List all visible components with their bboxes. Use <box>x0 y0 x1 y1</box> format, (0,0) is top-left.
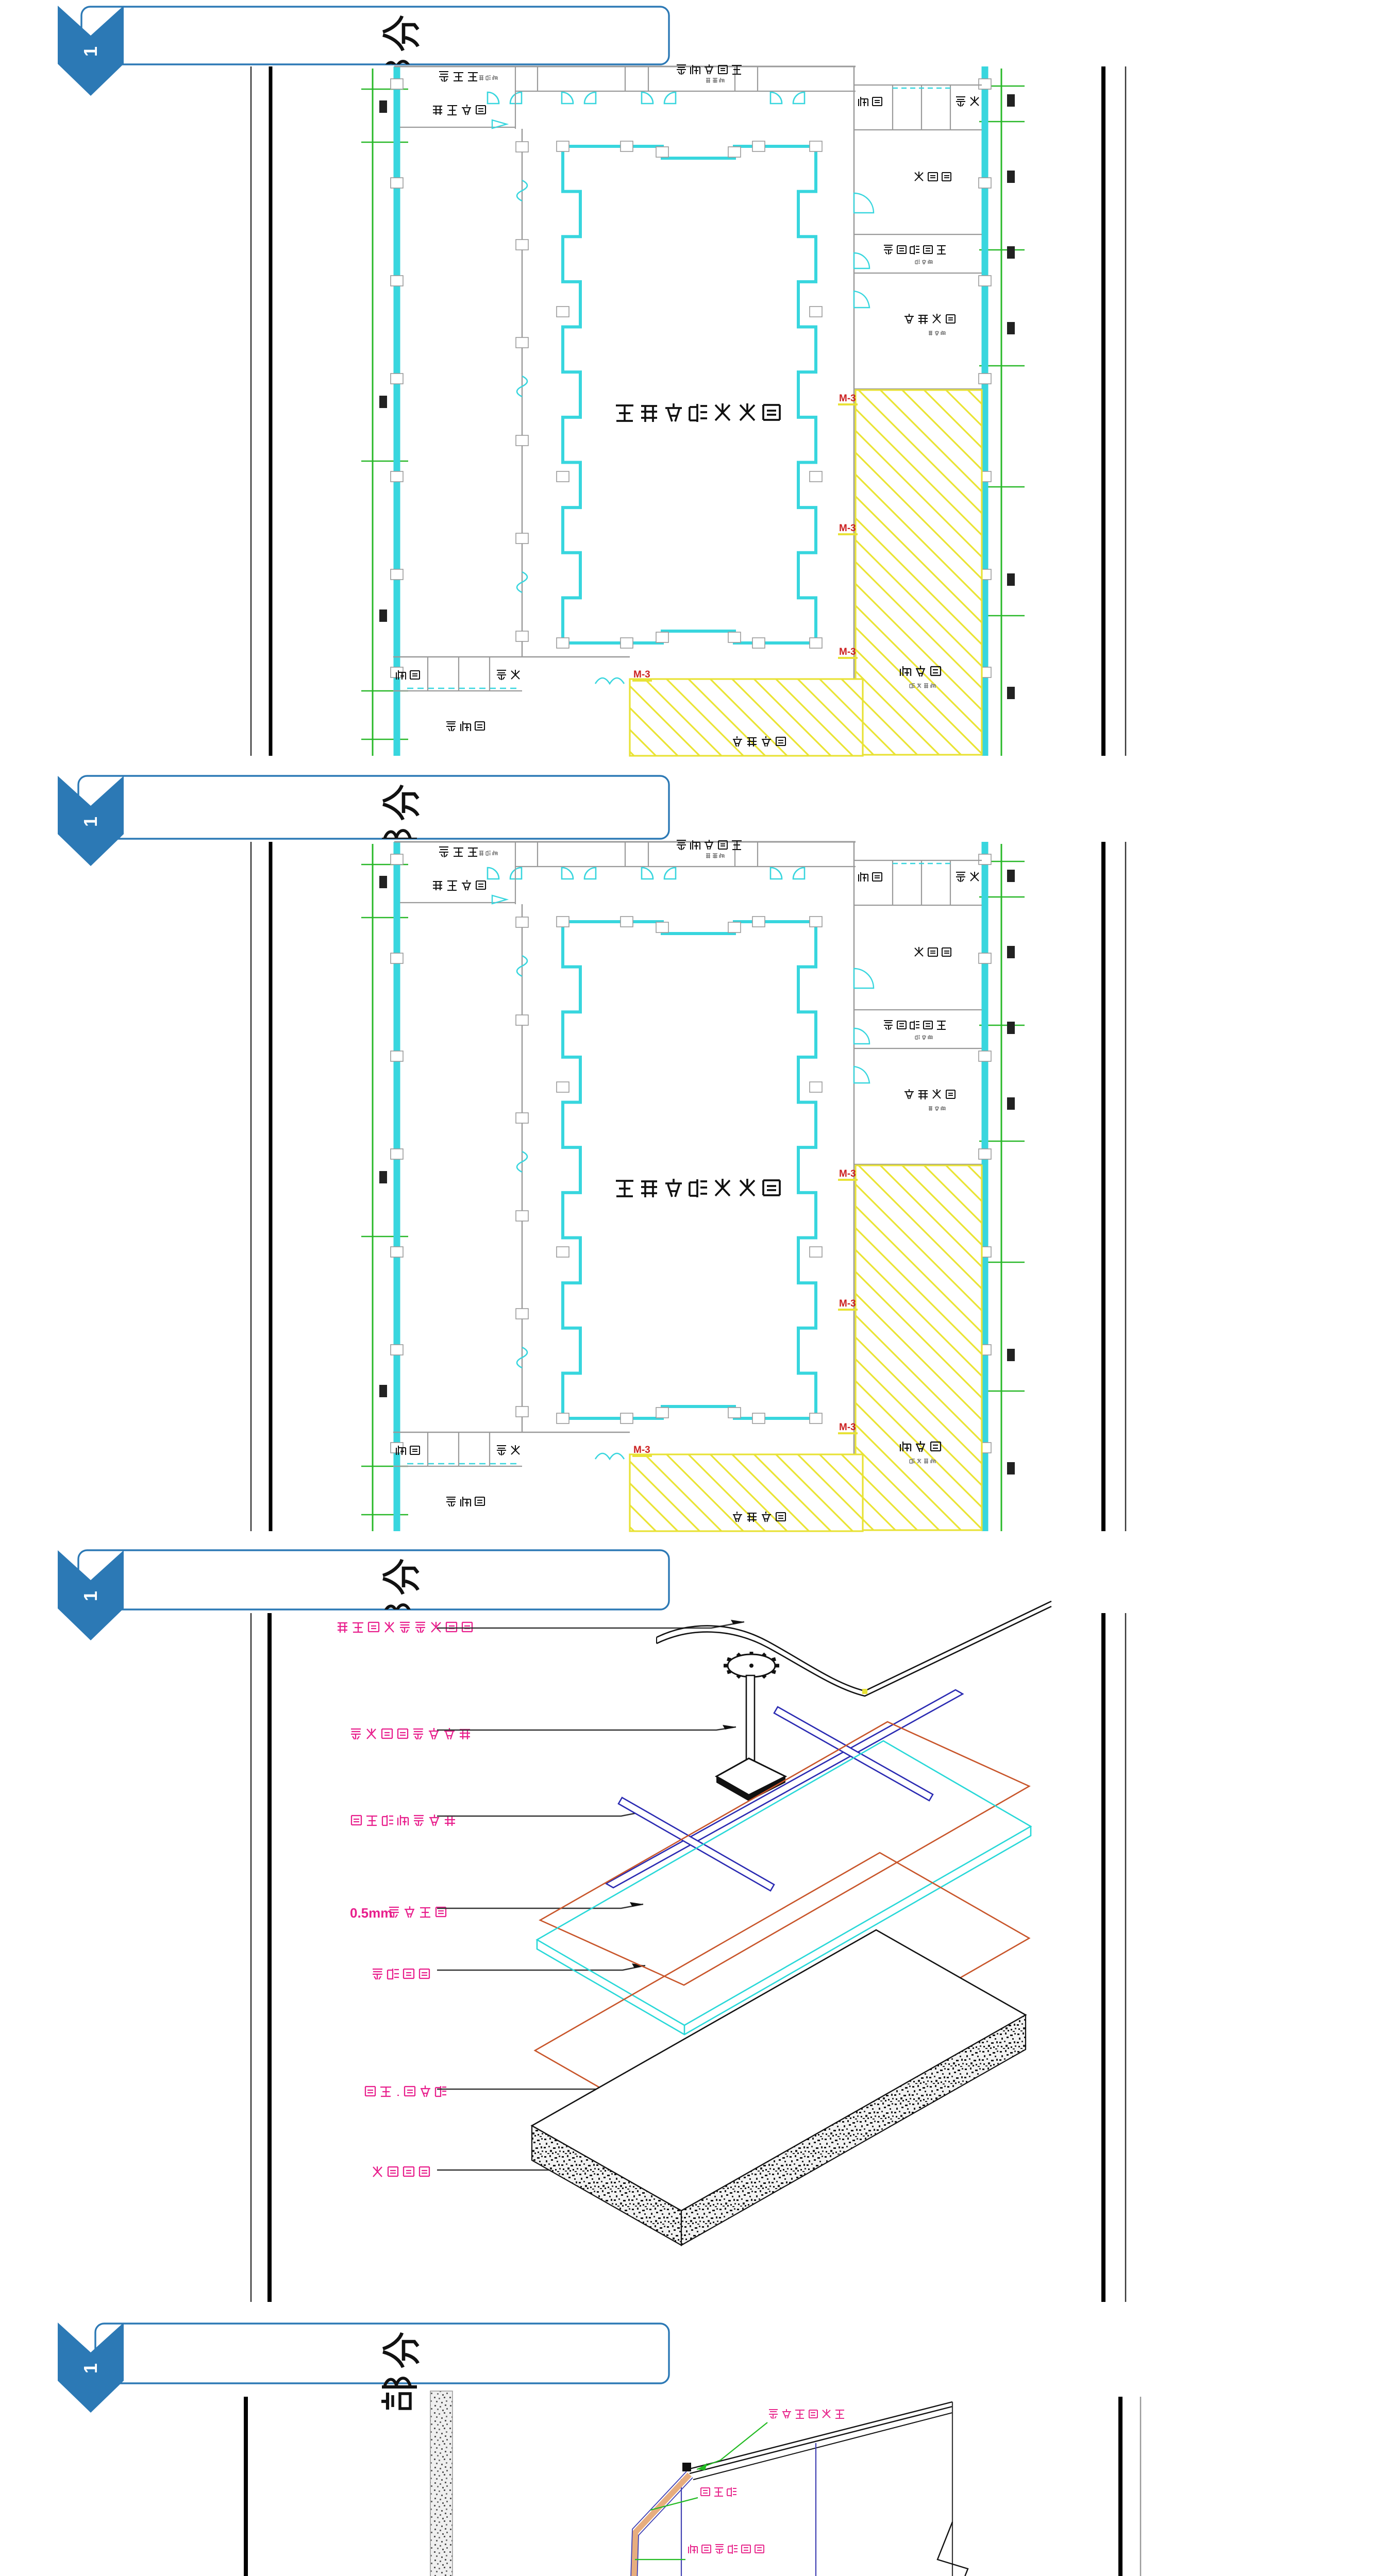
svg-text:M-3: M-3 <box>839 1168 856 1179</box>
svg-text:1: 1 <box>80 817 101 827</box>
svg-text:1: 1 <box>80 2363 101 2374</box>
svg-text:0.5mm: 0.5mm <box>350 1905 392 1921</box>
svg-text:1: 1 <box>80 1591 101 1601</box>
svg-text:M-3: M-3 <box>839 1422 856 1433</box>
svg-text:M-3: M-3 <box>839 1298 856 1309</box>
svg-text:1: 1 <box>80 46 101 57</box>
svg-text:M-3: M-3 <box>633 1445 650 1455</box>
